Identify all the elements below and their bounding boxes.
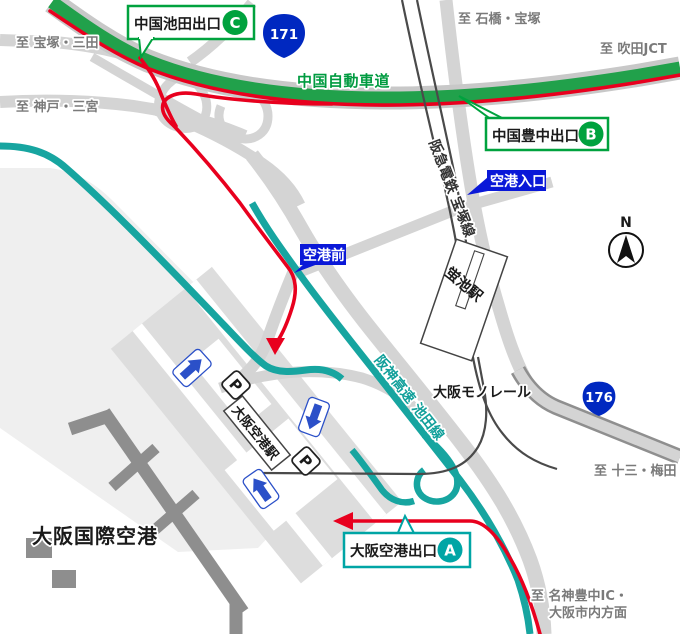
compass-north-label: N <box>620 215 632 231</box>
dest-meishin-line2: 大阪市内方面 <box>549 605 627 621</box>
dest-meishin-line1: 至 名神豊中IC・ <box>531 588 628 604</box>
dest-suita-jct: 至 吹田JCT <box>600 41 667 57</box>
airport-outbuilding <box>52 570 76 588</box>
airport-access-map: 蛍池駅 大阪空港駅 N 至 宝塚・三田 至 神戸・三宮 至 石橋・宝塚 至 吹田… <box>0 0 680 634</box>
exit-b-name: 中国豊中出口 <box>492 127 579 145</box>
exit-c-letter: C <box>229 14 240 32</box>
exit-a-name: 大阪空港出口 <box>350 542 437 560</box>
chugoku-expressway-label: 中国自動車道 <box>297 72 390 90</box>
exit-b-letter: B <box>585 126 596 144</box>
route-176-number: 176 <box>585 391 613 406</box>
dest-juso-umeda: 至 十三・梅田 <box>594 463 677 479</box>
dest-ishibashi-takarazuka: 至 石橋・宝塚 <box>458 11 541 27</box>
airport-front-label: 空港前 <box>303 247 345 264</box>
map-canvas: 蛍池駅 大阪空港駅 N 至 宝塚・三田 至 神戸・三宮 至 石橋・宝塚 至 吹田… <box>0 0 680 634</box>
airport-name-label: 大阪国際空港 <box>32 524 158 548</box>
airport-entrance-label: 空港入口 <box>490 173 546 190</box>
exit-a-letter: A <box>444 542 456 560</box>
monorail-label: 大阪モノレール <box>433 384 531 401</box>
dest-kobe-sannomiya: 至 神戸・三宮 <box>16 99 99 115</box>
route-171-number: 171 <box>270 27 298 43</box>
dest-takarazuka-sanda: 至 宝塚・三田 <box>16 35 99 51</box>
exit-c-name: 中国池田出口 <box>134 15 221 33</box>
